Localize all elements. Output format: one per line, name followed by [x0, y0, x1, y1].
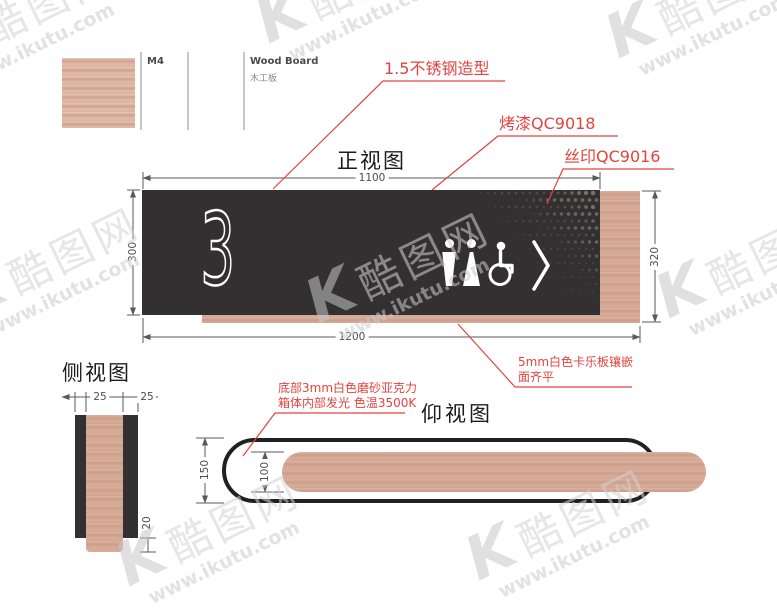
material-name-cn: 木工板 — [250, 71, 277, 84]
legend-divider — [187, 52, 189, 130]
watermark-logo-icon: K — [248, 0, 313, 50]
callout-silkscreen: 丝印QC9016 — [564, 147, 661, 166]
dim-bottom-inner: 100 — [259, 459, 271, 485]
callout-kaleboard-line1: 5mm白色卡乐板镶嵌 — [518, 355, 633, 370]
watermark-url: www.ikutu.com — [635, 0, 777, 81]
female-icon — [463, 239, 480, 286]
dim-panel-width: 1100 — [356, 172, 389, 184]
male-icon-head — [445, 239, 454, 248]
watermark: K酷图网 www.ikutu.com — [0, 191, 158, 347]
watermark: K酷图网 www.ikutu.com — [598, 0, 777, 87]
legend-divider — [140, 52, 142, 130]
dim-side-left: 25 — [90, 391, 109, 403]
dim-side-bottom: 20 — [141, 513, 153, 532]
callout-kaleboard-line2: 面齐平 — [518, 370, 633, 385]
callout-acrylic-line1: 底部3mm白色磨砂亚克力 — [278, 381, 417, 396]
dim-panel-height: 300 — [127, 239, 139, 265]
dim-side-right: 25 — [137, 391, 156, 403]
side-wood-core — [86, 415, 123, 552]
bottom-view-title: 仰视图 — [421, 398, 493, 428]
material-code: M4 — [147, 56, 164, 67]
wheelchair-icon — [487, 241, 518, 289]
side-view-title: 侧视图 — [62, 357, 131, 387]
female-icon-head — [467, 239, 476, 248]
side-steel-left — [75, 415, 86, 538]
watermark-url: www.ikutu.com — [145, 509, 318, 608]
watermark-brand: 酷图网 — [2, 202, 147, 302]
side-steel-right — [123, 415, 138, 538]
watermark-brand: 酷图网 — [0, 0, 122, 51]
sign-number: 3 — [188, 200, 248, 300]
pictogram-group — [442, 239, 552, 292]
callout-steel: 1.5不锈钢造型 — [384, 59, 489, 78]
dim-bottom-outer: 150 — [199, 457, 211, 483]
dim-board-height: 320 — [649, 244, 661, 270]
chevron-right-icon — [531, 239, 552, 292]
svg-text:3: 3 — [200, 200, 235, 300]
legend-divider — [243, 52, 245, 130]
watermark-url: www.ikutu.com — [685, 241, 777, 340]
watermark-brand: 酷图网 — [302, 0, 447, 26]
male-icon — [442, 239, 456, 286]
watermark-url: www.ikutu.com — [495, 503, 668, 602]
bottom-wood-bar — [282, 452, 706, 492]
front-view-title: 正视图 — [337, 145, 406, 175]
male-icon-body — [442, 252, 456, 286]
callout-paint: 烤漆QC9018 — [499, 114, 596, 133]
watermark-brand: 酷图网 — [652, 0, 777, 41]
watermark-logo-icon: K — [598, 0, 663, 65]
watermark-brand: 酷图网 — [702, 202, 777, 302]
signage-spec-sheet: { "colors":{"red":"#e2433e","panel":"#32… — [0, 0, 777, 577]
material-name-en: Wood Board — [250, 56, 318, 67]
watermark: K酷图网 www.ikutu.com — [648, 191, 777, 347]
wood-material-swatch — [62, 58, 135, 128]
dim-total-width: 1200 — [336, 331, 369, 343]
watermark-logo-icon: K — [0, 256, 13, 325]
female-icon-body — [463, 252, 480, 286]
callout-kaleboard: 5mm白色卡乐板镶嵌 面齐平 — [518, 355, 633, 385]
callout-acrylic-line2: 箱体内部发光 色温3500K — [278, 396, 417, 411]
callout-acrylic: 底部3mm白色磨砂亚克力 箱体内部发光 色温3500K — [278, 381, 417, 411]
